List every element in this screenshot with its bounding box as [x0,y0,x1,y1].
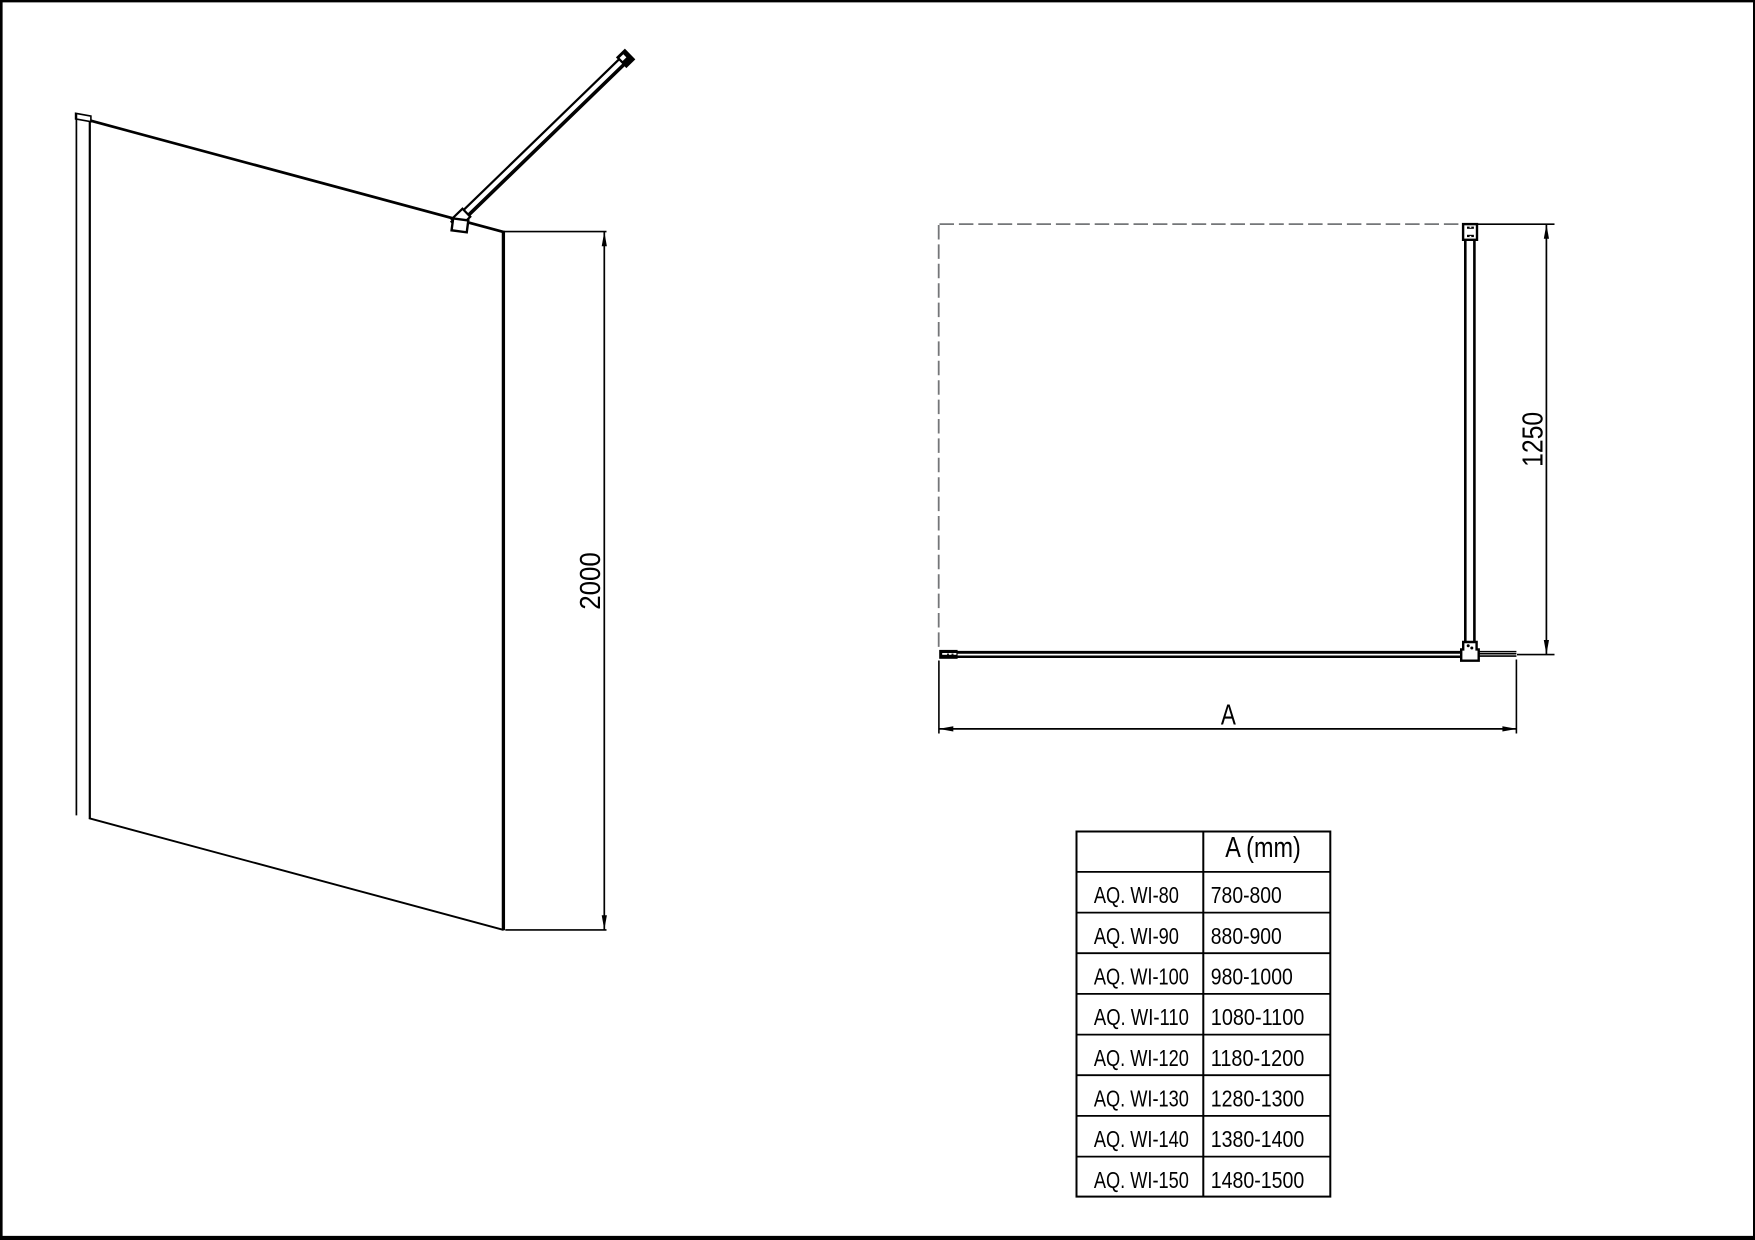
svg-text:1280-1300: 1280-1300 [1211,1085,1305,1111]
svg-text:A (mm): A (mm) [1225,832,1301,864]
svg-text:1380-1400: 1380-1400 [1211,1126,1305,1152]
svg-text:1250: 1250 [1518,412,1550,467]
svg-text:780-800: 780-800 [1211,882,1282,908]
svg-text:980-1000: 980-1000 [1211,963,1293,989]
svg-text:AQ. WI-120: AQ. WI-120 [1094,1045,1189,1071]
svg-text:AQ. WI-150: AQ. WI-150 [1094,1167,1189,1193]
svg-text:A: A [1221,699,1236,731]
svg-text:AQ. WI-90: AQ. WI-90 [1094,923,1179,949]
svg-text:1180-1200: 1180-1200 [1211,1045,1305,1071]
svg-text:1080-1100: 1080-1100 [1211,1004,1305,1030]
svg-text:2000: 2000 [575,552,607,610]
svg-text:880-900: 880-900 [1211,923,1282,949]
svg-text:AQ. WI-100: AQ. WI-100 [1094,963,1189,989]
svg-text:AQ. WI-80: AQ. WI-80 [1094,882,1179,908]
svg-text:AQ. WI-110: AQ. WI-110 [1094,1004,1189,1030]
svg-text:AQ. WI-130: AQ. WI-130 [1094,1085,1189,1111]
svg-text:AQ. WI-140: AQ. WI-140 [1094,1126,1189,1152]
svg-text:1480-1500: 1480-1500 [1211,1167,1305,1193]
